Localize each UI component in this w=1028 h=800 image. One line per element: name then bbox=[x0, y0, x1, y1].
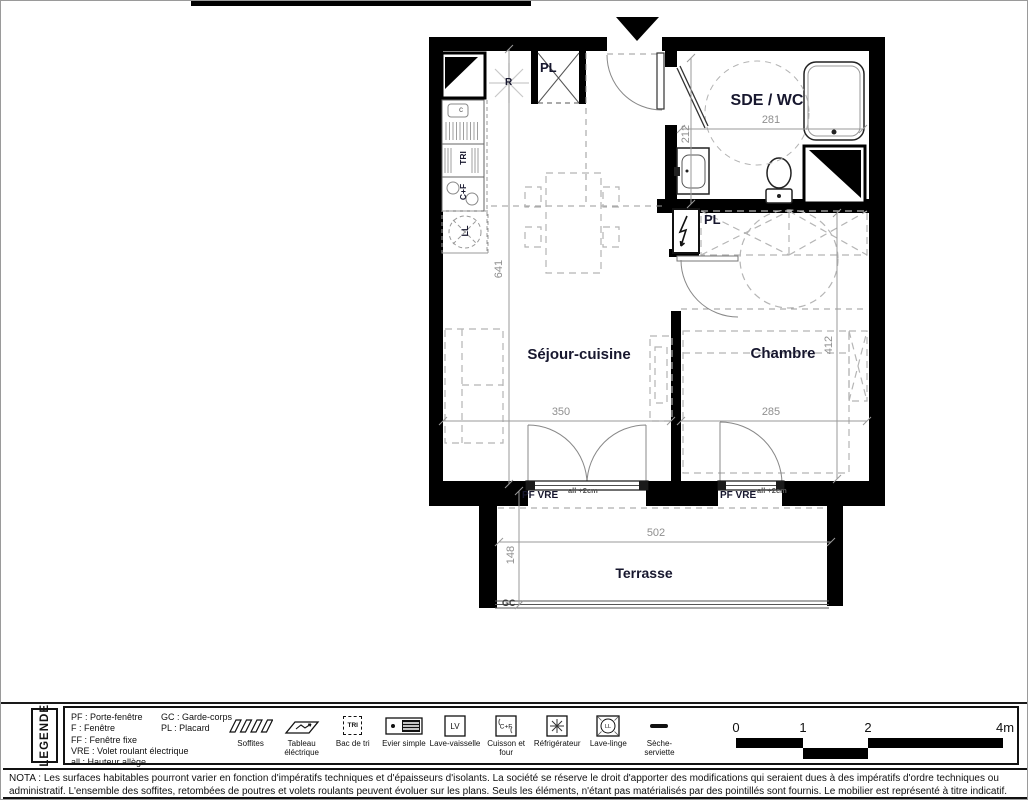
dim-terrasse-width: 502 bbox=[639, 527, 673, 539]
dim-chambre-width: 285 bbox=[754, 406, 788, 418]
tableau-electrique-icon bbox=[284, 712, 320, 739]
dim-sde-width: 281 bbox=[754, 114, 788, 126]
dim-chambre-width-line bbox=[677, 417, 871, 425]
scale-4m: 4m bbox=[996, 720, 1014, 735]
lave-linge-icon: LL bbox=[596, 712, 620, 739]
chair bbox=[525, 187, 541, 207]
window-note-sejour: all +2cm bbox=[568, 486, 598, 495]
soffit-boxes bbox=[442, 53, 865, 203]
legend-item-refrigerateur: Réfrigérateur bbox=[532, 712, 583, 757]
floor-plan-sheet: Séjour-cuisine Chambre SDE / WC Terrasse… bbox=[0, 0, 1028, 800]
dim-chambre-height: 412 bbox=[823, 328, 835, 362]
lave-vaisselle-icon: LV bbox=[444, 712, 466, 739]
doors bbox=[528, 53, 782, 484]
dim-sejour-width-line bbox=[439, 417, 675, 425]
chair bbox=[603, 187, 619, 207]
terrace-left-wall bbox=[479, 506, 497, 608]
legend-item-cuisson-et-four: C+F Cuisson et four bbox=[481, 712, 532, 757]
scale-segment bbox=[803, 748, 868, 759]
abbr-ff: FF : Fenêtre fixe bbox=[71, 735, 189, 746]
seche-serviette-icon bbox=[650, 712, 668, 739]
placard-chambre-label: PL bbox=[704, 212, 721, 227]
cuisson-et-four-icon: C+F bbox=[495, 712, 517, 739]
room-label-terrasse: Terrasse bbox=[594, 565, 694, 581]
scale-bar: 0 1 2 4m bbox=[729, 714, 1019, 762]
tri-label: TRI bbox=[458, 146, 468, 170]
fridge-label: R bbox=[505, 77, 512, 88]
abbr-all: all : Hauteur allège bbox=[71, 757, 189, 768]
bedroom-window-swing bbox=[720, 422, 782, 484]
legend-item-lave-linge: LL Lave-linge bbox=[583, 712, 634, 757]
scale-2: 2 bbox=[864, 720, 871, 735]
legend-item-bac-de-tri: TRI Bac de tri bbox=[327, 712, 378, 757]
legend-title: LEGENDE bbox=[39, 704, 51, 767]
dim-sejour-width: 350 bbox=[544, 406, 578, 418]
terrace-right-wall bbox=[827, 506, 843, 606]
scale-1: 1 bbox=[799, 720, 806, 735]
garde-corps-label: GC bbox=[502, 598, 516, 608]
entrance-door bbox=[607, 53, 664, 110]
dim-terrasse-width-line bbox=[495, 538, 835, 546]
legend-title-box: LEGENDE bbox=[31, 708, 58, 763]
dim-sde-height: 212 bbox=[680, 117, 692, 151]
legend-item-seche-serviette: Sèche-serviette bbox=[634, 712, 685, 757]
legend-divider bbox=[1, 702, 1028, 704]
abbr-gc: GC : Garde-corps bbox=[161, 712, 232, 723]
sejour-window-swing bbox=[528, 425, 646, 484]
dim-sejour-height-line bbox=[505, 45, 513, 488]
legend-box: PF : Porte-fenêtre F : Fenêtre FF : Fenê… bbox=[63, 706, 1019, 765]
bac-de-tri-icon: TRI bbox=[343, 712, 362, 739]
dim-terrasse-depth: 148 bbox=[505, 538, 517, 572]
svg-text:C+F: C+F bbox=[500, 723, 512, 730]
scale-0: 0 bbox=[732, 720, 739, 735]
room-label-sde-wc: SDE / WC bbox=[711, 92, 823, 110]
legend-abbreviations-col2: GC : Garde-corps PL : Placard bbox=[161, 712, 232, 735]
abbr-vre: VRE : Volet roulant électrique bbox=[71, 746, 189, 757]
sink-label: c bbox=[459, 105, 463, 114]
legend-item-evier-simple: Evier simple bbox=[378, 712, 429, 757]
legend-item-tableau-electrique: Tableau éléctrique bbox=[276, 712, 327, 757]
legend-item-lave-vaisselle: LV Lave-vaisselle bbox=[429, 712, 480, 757]
svg-text:LV: LV bbox=[450, 722, 460, 731]
bedroom-door bbox=[677, 256, 738, 317]
entrance-arrow-icon bbox=[616, 17, 659, 41]
turning-circle-bath bbox=[705, 61, 809, 165]
refrigerateur-icon bbox=[546, 712, 568, 739]
room-label-sejour: Séjour-cuisine bbox=[499, 346, 659, 363]
soffites-icon bbox=[229, 712, 273, 739]
partition-wall bbox=[671, 311, 681, 481]
legend-item-soffites: Soffites bbox=[225, 712, 276, 757]
cuisson-label: C+F bbox=[458, 179, 468, 205]
guardrail-lines bbox=[495, 601, 829, 608]
window-note-chambre: all +2cm bbox=[757, 486, 787, 495]
electrical-panel bbox=[673, 209, 699, 253]
legend-items: Soffites Tableau éléctrique TRI Bac de t… bbox=[225, 712, 685, 757]
window-label-chambre: PF VRE bbox=[720, 490, 756, 501]
scale-segment bbox=[868, 738, 1003, 748]
dim-sejour-height: 641 bbox=[493, 252, 505, 286]
wardrobe bbox=[701, 211, 867, 255]
toilet bbox=[766, 158, 792, 203]
evier-simple-icon bbox=[385, 712, 423, 739]
window-label-sejour: PF VRE bbox=[522, 490, 558, 501]
abbr-pl: PL : Placard bbox=[161, 723, 232, 734]
svg-text:LL: LL bbox=[605, 724, 611, 730]
bedside-unit bbox=[849, 331, 867, 401]
chair bbox=[525, 227, 541, 247]
sheet-top-strip bbox=[191, 1, 531, 6]
chair bbox=[603, 227, 619, 247]
room-label-chambre: Chambre bbox=[728, 345, 838, 362]
dining-table bbox=[546, 173, 601, 273]
kitchen-sink-unit bbox=[442, 100, 484, 144]
placard-kitchen-label: PL bbox=[540, 60, 557, 75]
furniture bbox=[445, 173, 867, 473]
sofa bbox=[445, 329, 503, 443]
scale-segment bbox=[736, 738, 803, 748]
nota-text: NOTA : Les surfaces habitables pourront … bbox=[3, 768, 1027, 799]
lave-linge-label: LL bbox=[460, 219, 470, 243]
